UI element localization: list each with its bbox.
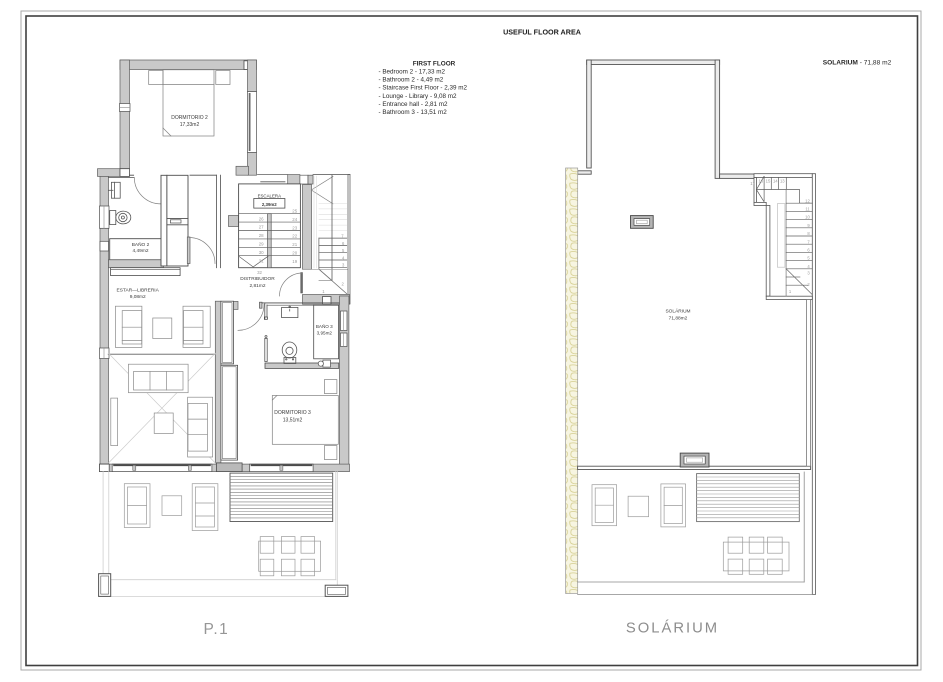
svg-text:21: 21 (292, 242, 297, 247)
svg-text:32: 32 (257, 270, 262, 275)
svg-text:13: 13 (780, 179, 785, 184)
svg-text:13,51m2: 13,51m2 (283, 418, 303, 424)
svg-text:- Bathroom 3 - 13,51 m2: - Bathroom 3 - 13,51 m2 (379, 109, 448, 116)
svg-text:31: 31 (259, 258, 264, 263)
svg-text:29: 29 (259, 242, 264, 247)
svg-text:DORMITORIO 3: DORMITORIO 3 (274, 410, 311, 416)
svg-text:24: 24 (292, 217, 297, 222)
svg-text:SOLÁRIUM: SOLÁRIUM (665, 308, 690, 315)
svg-text:30: 30 (259, 250, 264, 255)
svg-text:ESTAR—LIBRERIA: ESTAR—LIBRERIA (117, 288, 160, 294)
svg-text:20: 20 (292, 251, 297, 256)
svg-text:28: 28 (259, 233, 264, 238)
svg-text:26: 26 (259, 216, 264, 221)
svg-text:DORMITORIO 2: DORMITORIO 2 (171, 115, 208, 121)
svg-text:71,88m2: 71,88m2 (669, 316, 688, 322)
svg-text:17,33m2: 17,33m2 (180, 122, 200, 128)
svg-text:P.1: P.1 (204, 621, 230, 638)
svg-text:19: 19 (292, 259, 297, 264)
svg-text:2,81m2: 2,81m2 (250, 283, 266, 289)
svg-text:9,08m2: 9,08m2 (130, 294, 146, 300)
svg-text:3,95m2: 3,95m2 (317, 331, 333, 336)
svg-text:ESCALERA: ESCALERA (258, 194, 281, 199)
svg-text:25: 25 (292, 209, 297, 214)
svg-text:22: 22 (292, 234, 297, 239)
svg-text:15: 15 (766, 179, 771, 184)
svg-text:- Bedroom 2 - 17,33 m2: - Bedroom 2 - 17,33 m2 (379, 69, 446, 76)
svg-text:DISTRIBUIDOR: DISTRIBUIDOR (240, 276, 275, 282)
svg-text:10: 10 (805, 215, 810, 220)
svg-text:BAÑO 2: BAÑO 2 (132, 241, 150, 248)
svg-text:- Staircase First Floor - 2,39: - Staircase First Floor - 2,39 m2 (379, 85, 468, 92)
svg-text:16: 16 (758, 179, 763, 184)
svg-text:USEFUL FLOOR AREA: USEFUL FLOOR AREA (503, 28, 581, 37)
svg-text:2,39m2: 2,39m2 (262, 202, 277, 207)
svg-text:17: 17 (750, 181, 755, 186)
svg-text:27: 27 (259, 225, 264, 230)
svg-text:11: 11 (805, 207, 810, 212)
svg-text:SOLÁRIUM: SOLÁRIUM (626, 620, 719, 637)
svg-text:SOLARIUM - 71,88 m2: SOLARIUM - 71,88 m2 (823, 60, 892, 67)
svg-text:- Bathroom 2 - 4,49 m2: - Bathroom 2 - 4,49 m2 (379, 77, 444, 84)
svg-text:- Entrance hall - 2,81 m2: - Entrance hall - 2,81 m2 (379, 101, 448, 108)
svg-text:14: 14 (773, 179, 778, 184)
svg-text:4,49m2: 4,49m2 (133, 248, 149, 254)
svg-text:12: 12 (805, 198, 810, 203)
svg-text:- Lounge - Library - 9,08 m2: - Lounge - Library - 9,08 m2 (379, 93, 458, 100)
svg-text:BAÑO 3: BAÑO 3 (316, 323, 333, 329)
svg-text:23: 23 (292, 225, 297, 230)
svg-text:FIRST FLOOR: FIRST FLOOR (413, 61, 456, 68)
